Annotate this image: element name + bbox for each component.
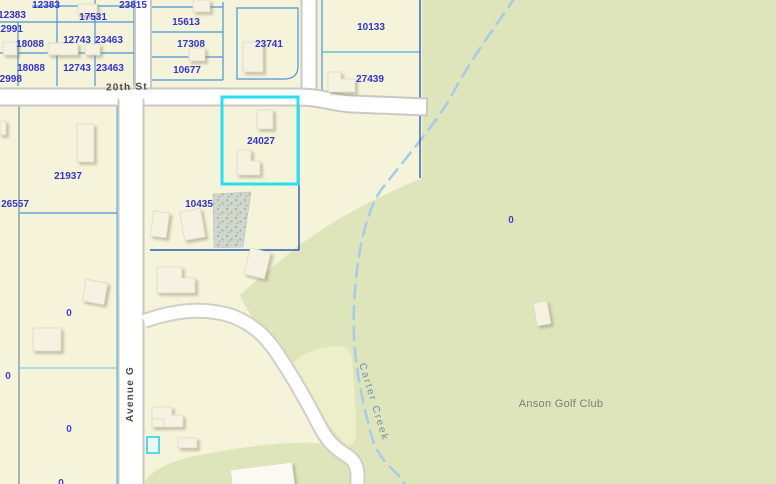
zero-label[interactable]: 0	[66, 424, 72, 435]
street-label-avenue-g: Avenue G	[125, 366, 136, 422]
parcel-label[interactable]: 12998	[0, 74, 22, 85]
parcel-label[interactable]: 12743	[63, 35, 91, 46]
highlighted-structure[interactable]	[147, 437, 159, 453]
map-canvas[interactable]: 12383 23815 12383 17531 12991 18088 1274…	[0, 0, 776, 484]
zero-label[interactable]: 0	[66, 308, 72, 319]
parcel-label[interactable]: 12991	[0, 24, 23, 35]
building	[3, 42, 17, 55]
building	[178, 438, 197, 448]
parcel-map-svg[interactable]: 12383 23815 12383 17531 12991 18088 1274…	[0, 0, 776, 484]
building	[152, 419, 164, 427]
parcel-label[interactable]: 23741	[255, 39, 283, 50]
parcel-label[interactable]: 17308	[177, 39, 205, 50]
building	[150, 211, 169, 238]
parcel-label[interactable]: 18088	[16, 39, 44, 50]
parcel-label[interactable]: 21937	[54, 171, 82, 182]
street-label-20th: 20th St	[106, 81, 148, 93]
parcel-label[interactable]: 12383	[0, 10, 26, 21]
parcel-label[interactable]: 26557	[1, 199, 29, 210]
building	[0, 121, 6, 135]
building	[193, 0, 210, 12]
parcel-label-selected[interactable]: 24027	[247, 136, 275, 147]
parcel-label[interactable]: 10677	[173, 65, 201, 76]
parcel-label[interactable]: 10435	[185, 199, 213, 210]
building	[82, 279, 107, 304]
parcel-label[interactable]: 17531	[79, 12, 107, 23]
parcel-label[interactable]: 18088	[17, 63, 45, 74]
building	[33, 328, 61, 351]
zero-label[interactable]: 0	[58, 478, 64, 484]
parcel-label[interactable]: 23815	[119, 0, 147, 11]
parcel-label[interactable]: 15613	[172, 17, 200, 28]
parcel-label[interactable]: 27439	[356, 74, 384, 85]
parcel-label[interactable]: 23463	[96, 63, 124, 74]
zero-label[interactable]: 0	[5, 371, 11, 382]
golf-club-label: Anson Golf Club	[519, 398, 604, 410]
building	[257, 110, 273, 129]
parcel-label[interactable]: 12743	[63, 63, 91, 74]
building	[77, 124, 94, 162]
zero-label[interactable]: 0	[508, 215, 514, 226]
road-20th-st	[0, 97, 428, 107]
parcel-label[interactable]: 12383	[32, 0, 60, 11]
parcel-label[interactable]: 10133	[357, 22, 385, 33]
building	[180, 208, 206, 240]
parcel-label[interactable]: 23463	[95, 35, 123, 46]
